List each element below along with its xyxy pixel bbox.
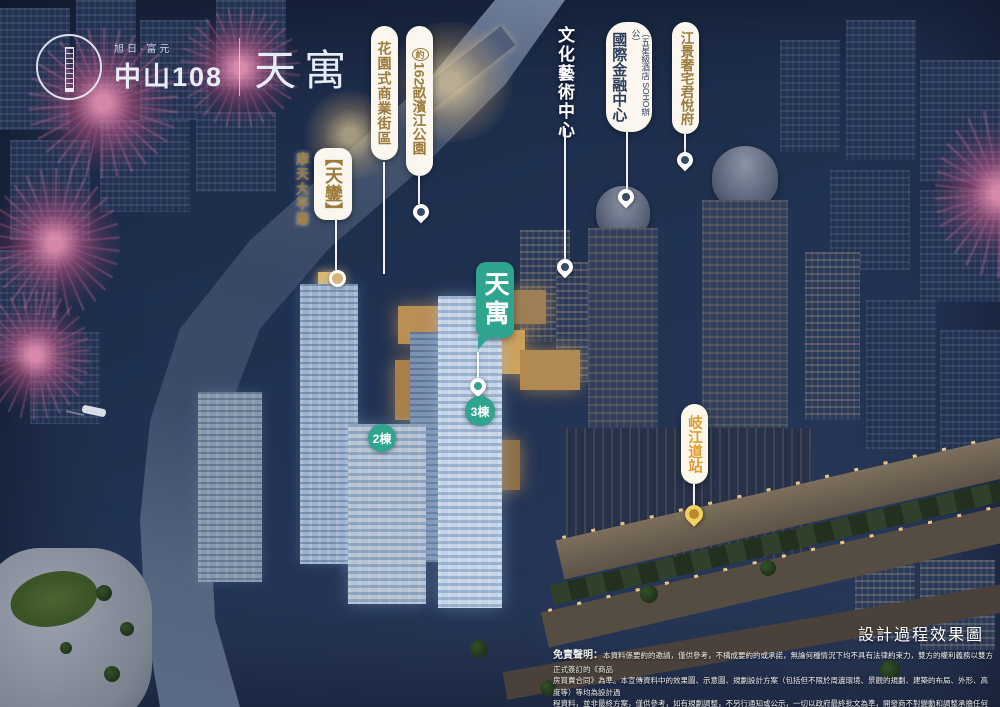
render-process-note: 設計過程效果圖 xyxy=(858,621,984,645)
callout-line xyxy=(626,132,628,189)
ring-pin-icon xyxy=(329,270,346,287)
tianyu-badge-tail xyxy=(478,336,490,350)
tree xyxy=(640,585,658,603)
logo: 旭日·富元 中山108 天寓 xyxy=(36,34,354,100)
logo-tower-icon xyxy=(36,34,102,100)
disclaimer-line-1: 本資料係要約的邀請，僅供參考，不構成要約的或承諾，無論何種情況下均不具有法律約束… xyxy=(553,651,993,674)
logo-divider xyxy=(239,38,240,96)
building xyxy=(846,20,916,160)
callout-culture-center[interactable]: 文化藝術中心 xyxy=(552,26,577,140)
callout-line xyxy=(477,352,479,378)
callout-line xyxy=(418,176,420,204)
tower xyxy=(198,392,262,582)
tower-3 xyxy=(438,296,502,608)
building xyxy=(780,40,840,152)
tree xyxy=(470,640,488,658)
building xyxy=(866,300,936,450)
tree xyxy=(104,666,120,682)
callout-tianluan-side: 摩天大平層 xyxy=(292,152,311,227)
tower-dome xyxy=(712,146,778,208)
map-pin-icon xyxy=(674,149,697,172)
approx-circle-icon: 約 xyxy=(412,48,429,61)
tree xyxy=(760,560,776,576)
poster: 旭日·富元 中山108 天寓 摩天大平層 【天鑾】 花園式商業街區 約162畝濱… xyxy=(0,0,1000,707)
callout-garden-street[interactable]: 花園式商業街區 xyxy=(371,26,398,160)
callout-tianluan-label: 【天鑾】 xyxy=(320,148,346,220)
logo-brand-main: 中山108 xyxy=(114,55,223,94)
callout-riverview-mansion[interactable]: 江景奢宅君悅府 xyxy=(672,22,699,134)
callout-riverview-label: 江景奢宅君悅府 xyxy=(676,31,696,126)
callout-line xyxy=(383,162,385,274)
map-pin-icon xyxy=(410,201,433,224)
tower-2-badge[interactable]: 2棟 xyxy=(368,424,396,452)
disclaimer-line-2: 房買賣合同》為準。本宣傳資料中的效果圖、示意圖、規劃設計方案（包括但不限於周邊環… xyxy=(553,675,993,698)
building xyxy=(805,252,860,420)
tower-3-badge-label: 3棟 xyxy=(471,403,490,420)
disclaimer-title: 免責聲明： xyxy=(553,650,603,661)
callout-garden-street-label: 花園式商業街區 xyxy=(375,41,395,146)
callout-line xyxy=(684,134,686,152)
callout-metro-label: 岐江道站 xyxy=(684,415,705,473)
callout-financial-center[interactable]: 國際金融中心 （五星級酒店 SOHO辦公） xyxy=(606,22,652,132)
tianyu-badge[interactable]: 天寓 xyxy=(476,262,514,338)
logo-brand-small: 旭日·富元 xyxy=(114,40,223,55)
callout-financial-side: （五星級酒店 SOHO辦公） xyxy=(630,29,650,125)
callout-riverside-park[interactable]: 約162畝濱江公園 xyxy=(406,26,433,176)
disclaimer-line-3: 程資料，並非最終方案，僅供參考，如有規劃調整，不另行通知或公示，一切以政府最終批… xyxy=(553,698,993,707)
callout-tianluan[interactable]: 【天鑾】 xyxy=(314,148,352,220)
tree xyxy=(120,622,134,636)
fireworks-gold xyxy=(380,22,520,142)
park-suffix: 畝濱江公園 xyxy=(412,85,428,155)
tree xyxy=(96,585,112,601)
callout-line xyxy=(564,128,566,259)
logo-product: 天寓 xyxy=(254,37,354,98)
tree xyxy=(60,642,72,654)
callout-line xyxy=(693,484,695,505)
tower-2-badge-label: 2棟 xyxy=(373,430,392,447)
tower-3-badge[interactable]: 3棟 xyxy=(465,396,495,426)
commercial-block xyxy=(520,350,580,390)
tianyu-badge-label: 天寓 xyxy=(477,271,513,329)
park-area-number: 162 xyxy=(412,62,428,85)
callout-financial-label: 國際金融中心 xyxy=(608,32,629,122)
callout-riverside-park-label: 約162畝濱江公園 xyxy=(410,47,430,155)
disclaimer: 免責聲明：本資料係要約的邀請，僅供參考，不構成要約的或承諾，無論何種情況下均不具… xyxy=(553,648,993,707)
callout-line xyxy=(335,220,337,270)
callout-metro-station[interactable]: 岐江道站 xyxy=(681,404,708,484)
